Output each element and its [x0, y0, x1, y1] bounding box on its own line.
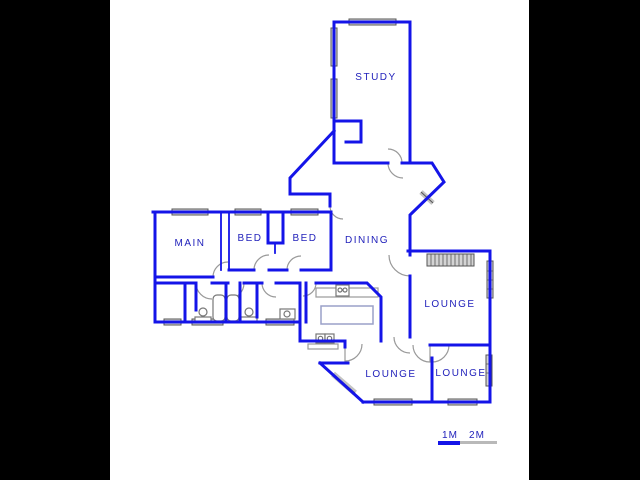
scale-segment-2m	[460, 441, 497, 444]
floor-plan-canvas: STUDY MAIN BED BED DINING LOUNGE LOUNGE …	[0, 0, 640, 480]
scale-segment-1m	[438, 441, 460, 445]
sink-icon	[284, 311, 290, 317]
room-label-bed-2: BED	[292, 233, 317, 244]
right-matte	[529, 0, 640, 480]
room-label-lounge-right: LOUNGE	[435, 368, 486, 379]
stove-burner-icon	[343, 288, 347, 292]
stove-burner-icon	[338, 288, 342, 292]
floor-sheet	[110, 0, 529, 480]
floor-plan-svg: STUDY MAIN BED BED DINING LOUNGE LOUNGE …	[0, 0, 640, 480]
room-label-main: MAIN	[175, 238, 206, 249]
lounge-top-window	[427, 254, 474, 266]
room-label-bed-1: BED	[237, 233, 262, 244]
left-matte	[0, 0, 110, 480]
room-label-study: STUDY	[355, 72, 396, 83]
room-label-lounge-mid: LOUNGE	[365, 369, 416, 380]
bathtub-icon	[227, 295, 239, 321]
room-label-dining: DINING	[345, 235, 389, 246]
toilet-icon	[199, 308, 207, 316]
room-label-lounge-top: LOUNGE	[424, 299, 475, 310]
scale-label-2m: 2M	[469, 430, 485, 441]
scale-label-1m: 1M	[442, 430, 458, 441]
bathtub-icon	[213, 295, 225, 321]
toilet-icon	[245, 308, 253, 316]
